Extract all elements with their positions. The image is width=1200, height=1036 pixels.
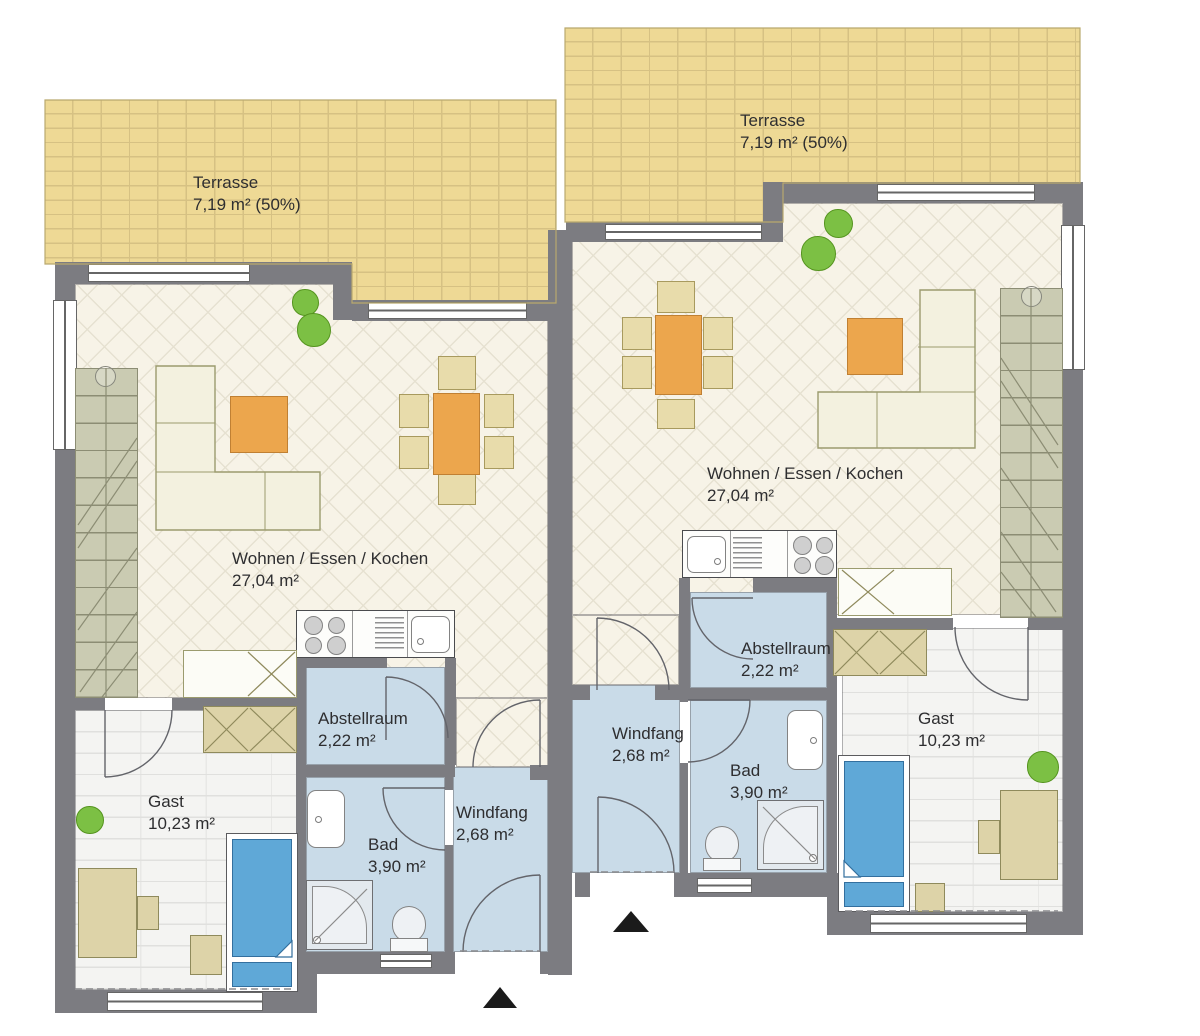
terrace-outlines [45, 28, 1080, 303]
room-name: Windfang [456, 802, 528, 824]
entrance-arrows [483, 911, 649, 1008]
door-vestibule-right [597, 618, 669, 690]
room-name: Terrasse [193, 172, 301, 194]
room-label-bad-left: Bad 3,90 m² [368, 834, 426, 878]
room-label-windfang-right: Windfang 2,68 m² [612, 723, 684, 767]
room-name: Wohnen / Essen / Kochen [707, 463, 903, 485]
room-area: 10,23 m² [148, 813, 215, 835]
room-label-gast-right: Gast 10,23 m² [918, 708, 985, 752]
room-area: 2,68 m² [612, 745, 684, 767]
floor-plan: Terrasse 7,19 m² (50%) Terrasse 7,19 m² … [0, 0, 1200, 1036]
entrance-arrow-right [613, 911, 649, 932]
room-label-abstellraum-right: Abstellraum 2,22 m² [741, 638, 831, 682]
room-area: 27,04 m² [232, 570, 428, 592]
room-name: Windfang [612, 723, 684, 745]
door-bath-right [688, 700, 750, 762]
room-area: 7,19 m² (50%) [193, 194, 301, 216]
sofa-left [156, 366, 320, 530]
stair-lines-left [78, 368, 137, 698]
room-label-bad-right: Bad 3,90 m² [730, 760, 788, 804]
room-area: 3,90 m² [730, 782, 788, 804]
room-label-wohnen-left: Wohnen / Essen / Kochen 27,04 m² [232, 548, 428, 592]
room-label-abstellraum-left: Abstellraum 2,22 m² [318, 708, 408, 752]
room-area: 7,19 m² (50%) [740, 132, 848, 154]
room-label-terrasse-left: Terrasse 7,19 m² (50%) [193, 172, 301, 216]
room-name: Abstellraum [318, 708, 408, 730]
room-label-wohnen-right: Wohnen / Essen / Kochen 27,04 m² [707, 463, 903, 507]
room-label-gast-left: Gast 10,23 m² [148, 791, 215, 835]
room-name: Gast [918, 708, 985, 730]
door-guest-left [105, 710, 172, 777]
room-name: Gast [148, 791, 215, 813]
room-area: 10,23 m² [918, 730, 985, 752]
door-guest-right [955, 627, 1028, 700]
door-vestibule-left [473, 700, 540, 767]
door-entrance-left [463, 875, 540, 952]
door-entrance-right [598, 797, 674, 873]
room-name: Bad [730, 760, 788, 782]
entrance-arrow-left [483, 987, 517, 1008]
room-label-windfang-left: Windfang 2,68 m² [456, 802, 528, 846]
room-name: Abstellraum [741, 638, 831, 660]
sofa-right [818, 290, 975, 448]
room-area: 2,22 m² [318, 730, 408, 752]
linework-overlay [0, 0, 1200, 1036]
room-name: Terrasse [740, 110, 848, 132]
room-area: 27,04 m² [707, 485, 903, 507]
room-name: Wohnen / Essen / Kochen [232, 548, 428, 570]
room-name: Bad [368, 834, 426, 856]
threshold-dashes [75, 872, 1058, 989]
room-area: 2,22 m² [741, 660, 831, 682]
room-area: 3,90 m² [368, 856, 426, 878]
stair-lines-right [1001, 288, 1058, 618]
bed-fold-marks [276, 861, 860, 957]
room-area: 2,68 m² [456, 824, 528, 846]
room-label-terrasse-right: Terrasse 7,19 m² (50%) [740, 110, 848, 154]
